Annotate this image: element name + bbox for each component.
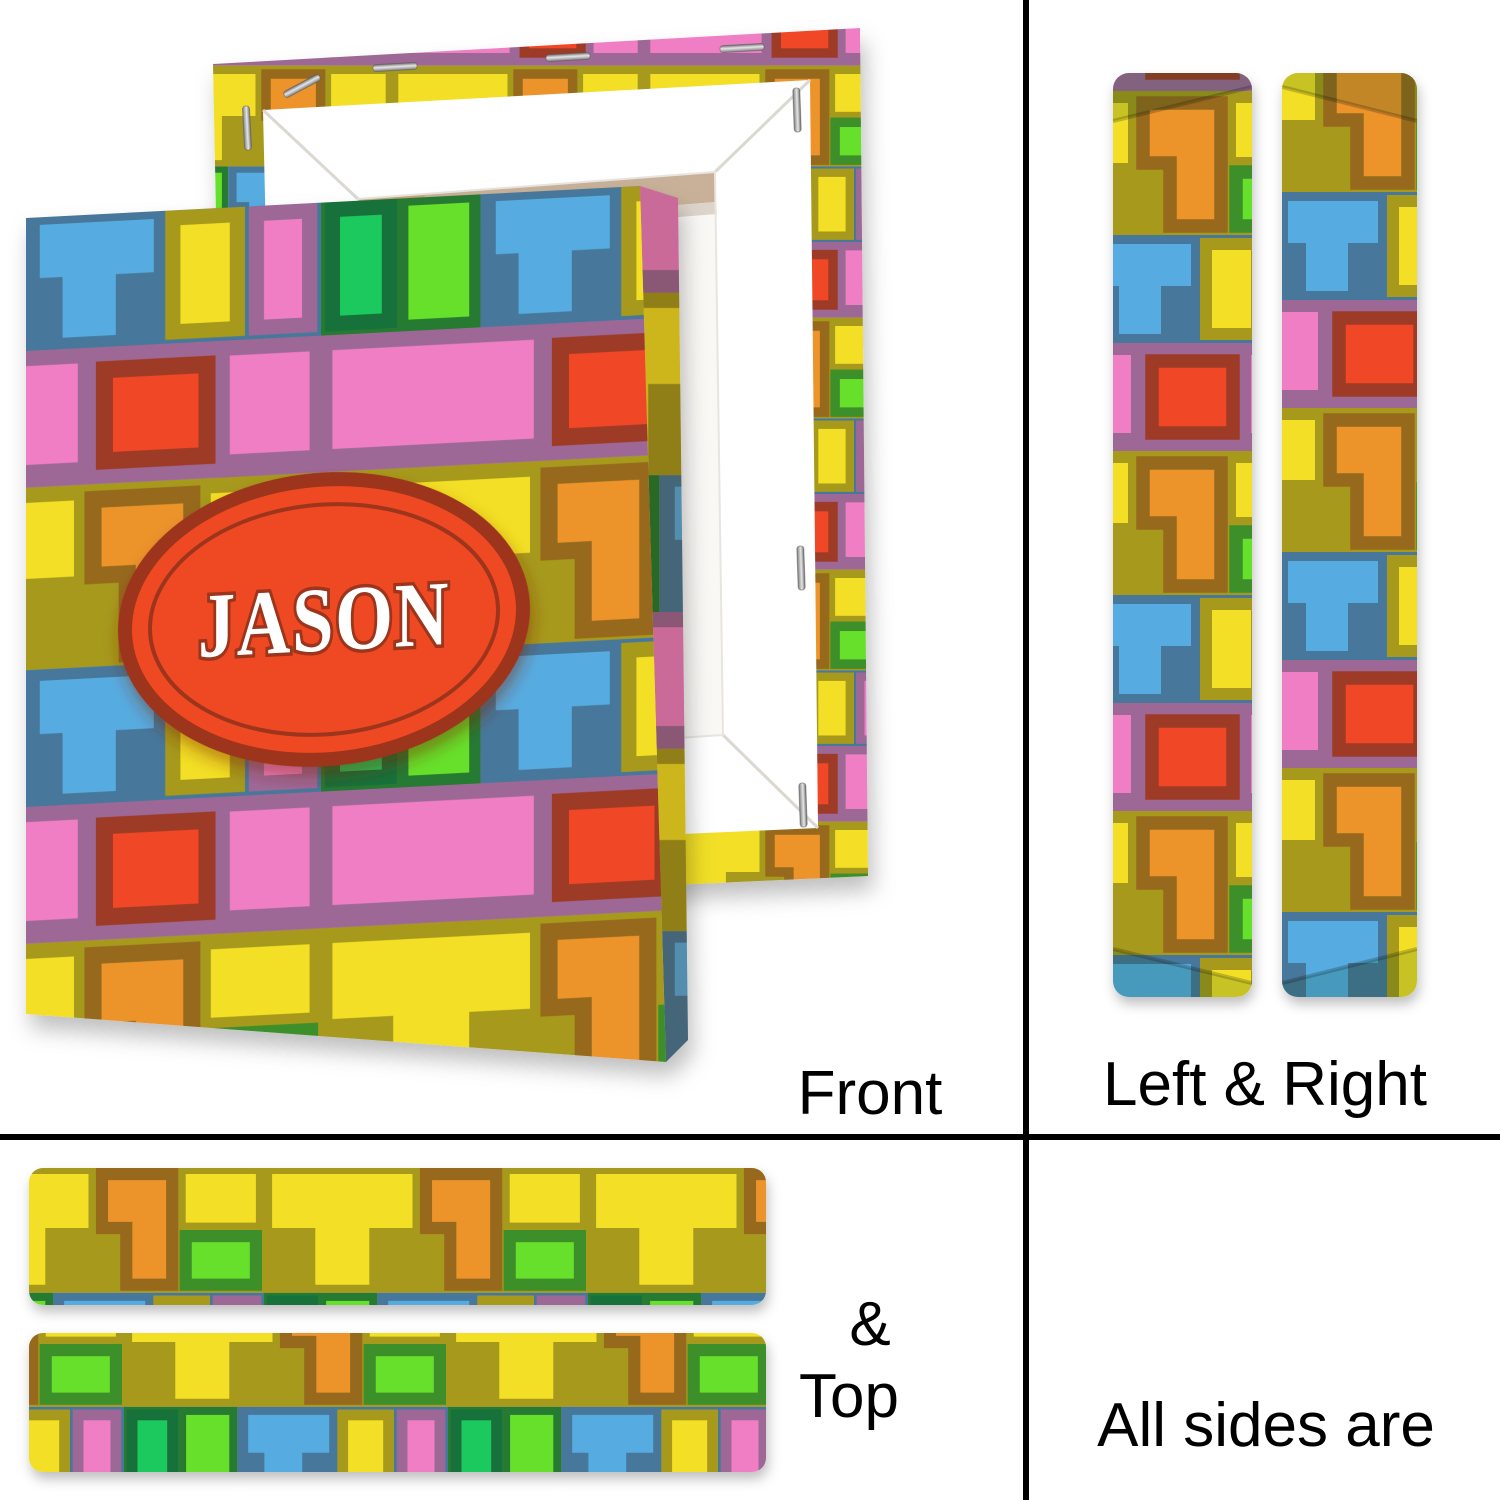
all-sides-line: All sides are (1034, 1388, 1498, 1463)
staple (797, 546, 806, 590)
product-views-sheet: JASON (0, 0, 1500, 1500)
left-side-strip (1113, 73, 1252, 997)
personalized-name: JASON (198, 562, 450, 677)
top-bottom-line: Top (799, 1358, 1029, 1435)
top-side-strip (29, 1168, 766, 1305)
canvas-front-view: JASON (0, 151, 736, 1160)
all-sides-note: All sides are approx. 1.5” in (1034, 1238, 1498, 1500)
front-back-line: Front (715, 1055, 1025, 1132)
top-bottom-label: Top & Bottom (799, 1204, 1029, 1500)
right-side-strip (1282, 73, 1417, 997)
bottom-side-strip (29, 1333, 766, 1472)
staple (799, 783, 808, 827)
left-right-label: Left & Right (1032, 1046, 1498, 1123)
staple (793, 88, 802, 132)
